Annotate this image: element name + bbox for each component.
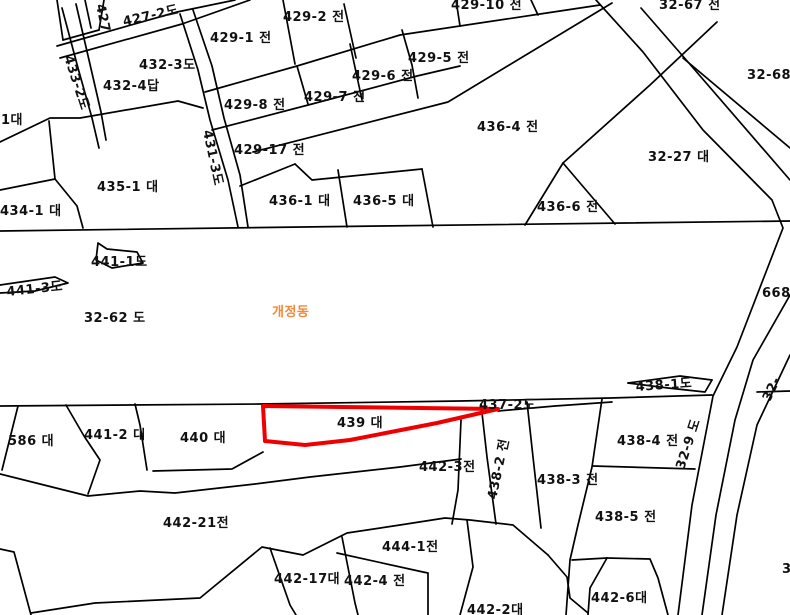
parcel-label: 32-68	[747, 68, 790, 83]
parcel-boundary	[0, 101, 203, 142]
parcel-label: 436-5 대	[353, 194, 415, 209]
parcel-label: 432-3도	[139, 58, 196, 73]
parcel-label: 436-1 대	[269, 194, 331, 209]
parcel-boundary	[607, 558, 668, 615]
parcel-label: 440 대	[180, 431, 226, 446]
parcel-boundary	[0, 459, 461, 496]
parcel-label: 427-2도	[122, 3, 180, 30]
parcel-label: 442-17대	[274, 572, 340, 587]
parcel-boundary	[566, 399, 602, 615]
parcel-boundary	[31, 518, 548, 613]
parcel-boundary	[531, 0, 538, 15]
parcel-boundary	[49, 121, 55, 179]
parcel-boundary	[572, 558, 607, 560]
parcel-boundary	[253, 3, 612, 152]
parcel-boundary	[66, 405, 100, 494]
parcel-label: 427	[92, 3, 113, 34]
parcel-boundary	[0, 221, 790, 231]
parcel-label: 429-1 전	[210, 30, 272, 46]
parcel-label: 444-1전	[382, 539, 439, 555]
parcel-label: 437-2도	[479, 398, 536, 413]
parcel-label: 436-6 전	[537, 199, 599, 215]
parcel-label: 442-21전	[163, 515, 229, 531]
parcel-label: 441-2 대	[84, 428, 146, 443]
parcel-label: 429-6 전	[352, 68, 414, 84]
parcel-label: 436-4 전	[477, 119, 539, 135]
parcel-label: 435-1 대	[97, 180, 159, 195]
parcel-boundary	[338, 170, 347, 227]
parcel-boundary	[702, 295, 790, 615]
parcel-label: 442-3전	[419, 459, 476, 475]
parcel-boundary	[527, 402, 541, 528]
parcel-boundary	[722, 355, 790, 615]
parcel-boundary	[240, 164, 295, 186]
parcel-label: 32-67 전	[659, 0, 721, 13]
parcel-boundary	[57, 0, 63, 40]
parcel-label: 433-2도	[60, 54, 92, 112]
parcel-labels: 427427-2도429-2 전429-1 전432-3도432-4답429-8…	[0, 0, 790, 615]
parcel-label: 586 대	[8, 434, 54, 449]
parcel-label: 434-1 대	[0, 204, 62, 219]
parcel-label: 429-5 전	[408, 50, 470, 66]
parcel-boundary	[153, 452, 263, 471]
parcel-boundary	[563, 22, 717, 163]
parcel-boundary	[460, 520, 473, 615]
parcel-boundary	[588, 558, 607, 615]
parcel-label: 429-7 전	[304, 89, 366, 105]
parcel-label: 438-1도	[635, 376, 692, 395]
parcel-label: 441-1도	[91, 255, 148, 270]
parcel-label: 438-5 전	[595, 509, 657, 525]
district-label: 개정동	[272, 304, 309, 320]
map-canvas[interactable]: 427427-2도429-2 전429-1 전432-3도432-4답429-8…	[0, 0, 790, 615]
parcel-label: 429-2 전	[283, 9, 345, 25]
cadastral-map[interactable]: 427427-2도429-2 전429-1 전432-3도432-4답429-8…	[0, 0, 790, 615]
parcel-boundary	[0, 395, 712, 406]
parcel-boundary	[295, 164, 422, 180]
parcel-label: 438-4 전	[617, 433, 679, 449]
parcel-label: 429-17 전	[234, 142, 305, 158]
parcel-boundary	[85, 0, 91, 28]
parcel-label: 668	[762, 286, 790, 301]
parcel-label: 432-4답	[103, 79, 160, 94]
parcel-boundary	[422, 169, 433, 227]
parcel-label: 438-3 전	[537, 472, 599, 488]
parcel-label: 32-27 대	[648, 150, 710, 165]
parcel-boundary	[0, 179, 55, 190]
parcel-label: 442-2대	[467, 603, 524, 615]
parcel-label: 439 대	[337, 416, 383, 431]
parcel-label: 32-62 도	[84, 311, 146, 326]
parcel-boundary	[0, 549, 31, 615]
parcel-label: 3	[782, 562, 790, 577]
parcel-label: 429-8 전	[224, 97, 286, 113]
parcel-label: 442-4 전	[344, 573, 406, 589]
parcel-boundary	[525, 163, 563, 225]
parcel-label: 1대	[1, 113, 23, 128]
parcel-label: 32-	[760, 375, 784, 404]
parcel-label: 442-6대	[591, 591, 648, 606]
parcel-label: 429-10 전	[451, 0, 522, 13]
